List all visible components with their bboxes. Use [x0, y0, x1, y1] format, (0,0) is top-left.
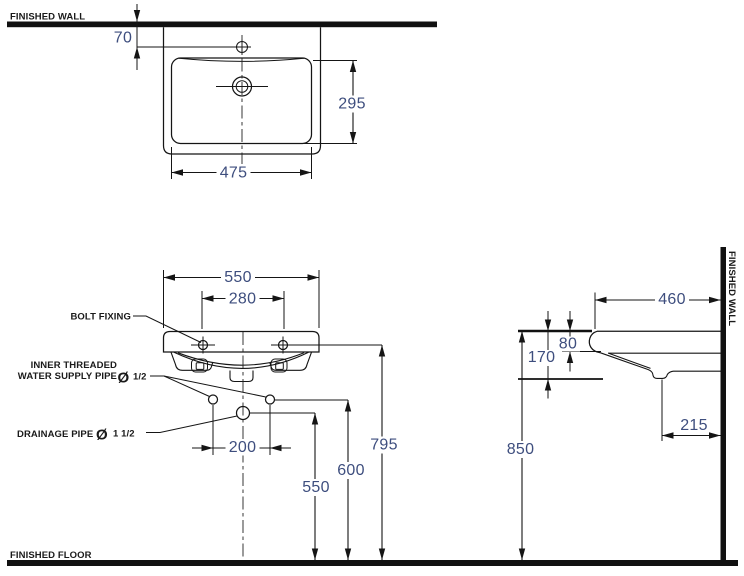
dim-70: 70	[114, 30, 132, 47]
dim-280: 280	[229, 291, 257, 308]
dim-475: 475	[220, 165, 248, 182]
finished-wall-side-label: FINISHED WALL	[726, 251, 737, 326]
drain-diameter-icon: Ø	[96, 427, 108, 444]
bowl-back-ledge	[179, 58, 304, 61]
drainage-pipe-label: DRAINAGE PIPE	[17, 429, 93, 440]
text-masks	[217, 96, 690, 497]
dim-600: 600	[337, 462, 365, 479]
front-view	[133, 270, 382, 560]
dim-170: 170	[528, 349, 556, 366]
bolt-fixing-label: BOLT FIXING	[70, 312, 131, 323]
bolt-fixing-leader	[133, 316, 201, 343]
supply-leader-right	[164, 376, 266, 397]
supply-label-line2: WATER SUPPLY PIPE	[18, 371, 117, 382]
dim-460: 460	[658, 291, 686, 308]
dim-550-width: 550	[224, 269, 252, 286]
finished-floor-label: FINISHED FLOOR	[10, 550, 92, 561]
dim-850: 850	[507, 441, 535, 458]
dim-550-height: 550	[302, 479, 330, 496]
supply-diameter-icon: Ø	[118, 370, 130, 387]
finished-wall-line-side	[721, 247, 727, 563]
supply-diameter-value: 1/2	[133, 372, 147, 383]
dim-70-lines	[137, 4, 237, 70]
supply-pipe-right	[266, 395, 275, 404]
side-view	[518, 247, 726, 563]
drawing-canvas: 70 295 475 550 280 200 550 600 795 850 4…	[0, 0, 744, 576]
finished-floor-line	[7, 560, 738, 566]
dim-215: 215	[680, 417, 708, 434]
basin-installation-drawing: 70 295 475 550 280 200 550 600 795 850 4…	[0, 0, 744, 576]
bolt-right	[271, 337, 295, 354]
dim-200: 200	[229, 439, 257, 456]
bowl-arc-outer	[174, 352, 309, 368]
supply-label-line1: INNER THREADED	[31, 360, 117, 371]
drain-tab	[230, 371, 253, 382]
dim-795: 795	[370, 437, 398, 454]
plan-view	[7, 4, 437, 179]
basin-bowl-plan	[172, 58, 312, 144]
dim-295: 295	[338, 96, 366, 113]
basin-rim-front	[164, 332, 320, 353]
finished-wall-top-label: FINISHED WALL	[10, 12, 85, 23]
dim-80: 80	[559, 336, 577, 353]
supply-pipe-left	[209, 395, 218, 404]
drain-diameter-value: 1 1/2	[113, 429, 135, 440]
basin-profile	[589, 331, 720, 378]
drain-leader	[146, 416, 237, 433]
